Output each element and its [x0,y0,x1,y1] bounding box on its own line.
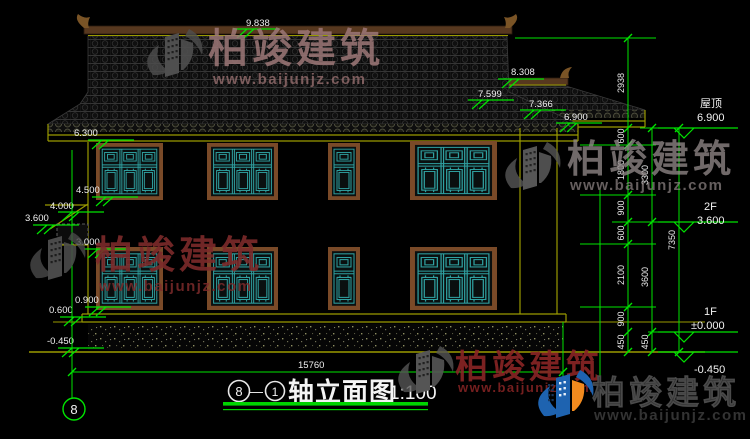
watermark-site: www.baijunjz.com [569,177,723,194]
level-label-0900: 0.900 [75,295,99,306]
window-2f-1 [98,145,161,198]
watermark-site: www.baijunjz.com [98,278,252,295]
wing-ridge-ornament [560,67,572,78]
window-2f-2 [209,145,276,198]
floor2-level: 3.600 [697,215,725,227]
floor1-level: ±0.000 [691,320,725,332]
roof-label: 屋顶 [700,97,722,110]
floor2-label: 2F [704,201,717,213]
dim-900b: 900 [616,311,626,326]
level-label-n0450: -0.450 [47,336,74,347]
level-label-3600: 3.600 [25,213,49,224]
title-axis-start: 8 [235,384,242,399]
window-1f-3 [330,249,358,308]
roof-level: 6.900 [697,112,725,124]
window-2f-3 [330,145,358,198]
dim-900a: 900 [616,200,626,215]
dim-2938: 2938 [616,73,626,93]
window-2f-4 [412,143,494,198]
watermark-site: www.baijunjz.com [593,407,747,424]
dim-450b: 450 [640,334,650,349]
watermark-name: 柏竣建筑 [592,374,740,411]
ridge-ornament-left [77,14,90,28]
window-1f-4 [412,249,494,308]
dim-450a: 450 [616,334,626,349]
watermark-name: 柏竣建筑 [208,27,384,71]
floor1-label: 1F [704,306,717,318]
dim-3600: 3600 [640,267,650,287]
level-label-0600: 0.600 [49,305,73,316]
elevation-drawing: 9.838 8.308 7.599 7.366 6.900 6.300 4.50… [0,0,750,439]
title-axis-end: 1 [272,385,279,399]
watermark-name: 柏竣建筑 [567,139,735,181]
title-underline-thin [223,409,428,410]
title-underline-thick [223,402,428,406]
cad-canvas: 9.838 8.308 7.599 7.366 6.900 6.300 4.50… [0,0,750,439]
dim-total-width: 15760 [298,360,324,371]
watermark-bottom-right-logo: 柏竣建筑 www.baijunjz.com [538,370,747,424]
level-label-6900: 6.900 [564,112,588,123]
dim-7350: 7350 [667,230,677,250]
level-label-4000: 4.000 [50,201,74,212]
level-label-6300: 6.300 [74,128,98,139]
title-dash: — [249,383,263,399]
axis-bubble-number: 8 [70,402,77,417]
watermark-name: 柏竣建筑 [95,235,263,277]
axis-bubble: 8 [63,398,85,420]
ground [29,322,705,352]
watermark-mid-right: 柏竣建筑 www.baijunjz.com [505,139,735,194]
dim-2100: 2100 [616,265,626,285]
watermark-site: www.baijunjz.com [212,71,366,88]
level-label-8308: 8.308 [511,67,535,78]
ridge-ornament-right [504,14,517,28]
level-label-7599: 7.599 [478,89,502,100]
dim-600b: 600 [616,225,626,240]
level-label-7366: 7.366 [529,99,553,110]
level-label-4500: 4.500 [76,185,100,196]
plinth [82,314,566,322]
